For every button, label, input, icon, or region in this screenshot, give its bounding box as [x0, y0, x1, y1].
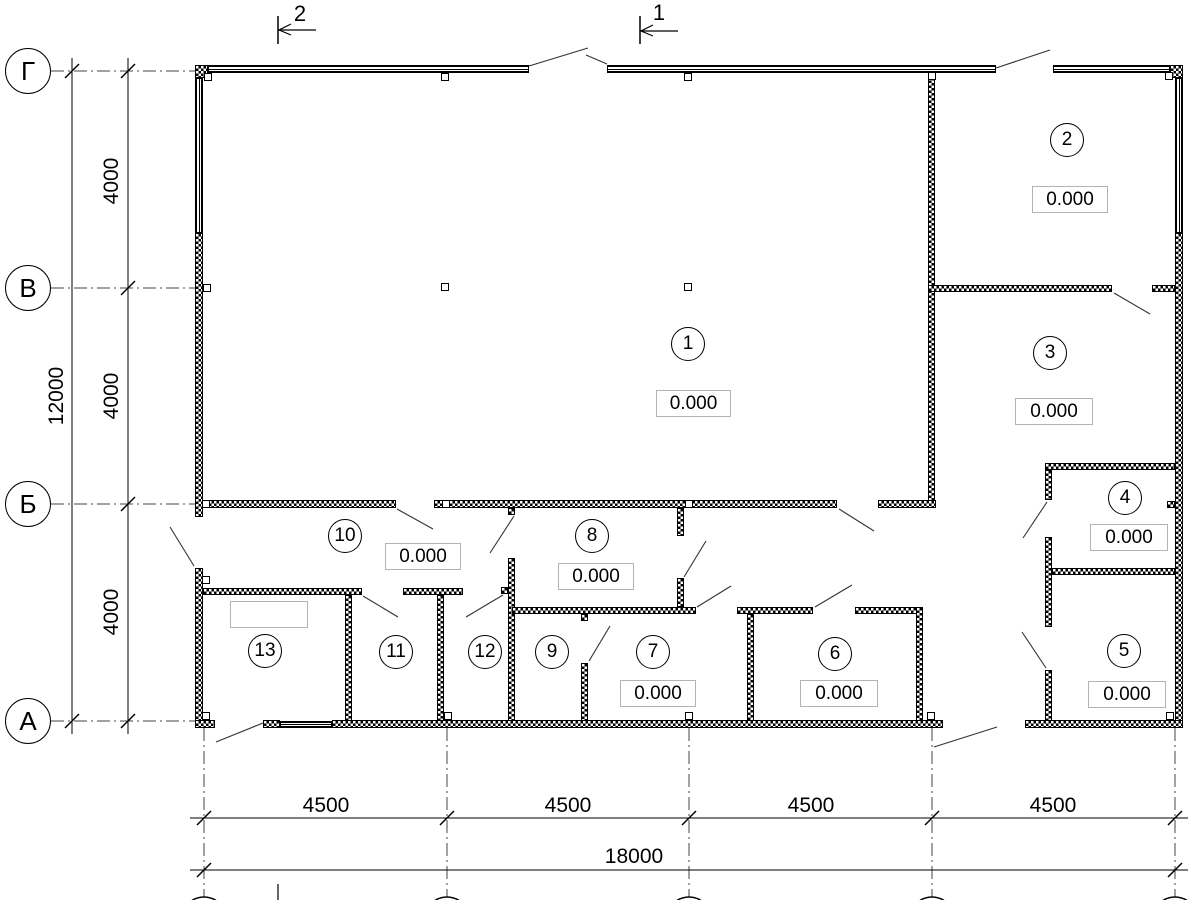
wall-room12-top-stub: [501, 587, 508, 594]
dim-horizontal-segment-1: 4500: [303, 794, 350, 818]
wall-room11-12-top: [403, 588, 463, 595]
plan-linework: [0, 0, 1200, 900]
room-number-7: 7: [636, 635, 670, 669]
wall-bottom-seg3: [1025, 720, 1183, 728]
room-number-13: 13: [248, 634, 282, 668]
dim-horizontal-segment-2: 4500: [545, 794, 592, 818]
column-marker: [1166, 712, 1174, 720]
window-top-right-band: [1053, 65, 1170, 73]
dim-vertical-segment-2: 4000: [100, 373, 124, 420]
wall-room5-left-lower: [1045, 670, 1052, 721]
column-marker: [204, 73, 212, 81]
wall-room7-6-top-seg2: [855, 607, 923, 614]
wall-partition-12-9: [508, 558, 515, 721]
room-5-elevation: 0.000: [1088, 681, 1166, 708]
room-number-5: 5: [1107, 634, 1141, 668]
column-marker: [685, 500, 693, 508]
room-7-elevation: 0.000: [620, 680, 696, 707]
wall-axisBB-seg1: [203, 500, 396, 508]
section-mark-2: [278, 16, 316, 900]
wall-partition-11-12: [437, 595, 444, 721]
room-number-12: 12: [468, 635, 502, 669]
room-number-11: 11: [379, 635, 413, 669]
wall-partition-12-9-stub: [508, 508, 515, 515]
wall-right-axisBB-stub: [1167, 501, 1175, 508]
wall-bottom-seg1: [263, 720, 280, 728]
column-marker: [202, 576, 210, 584]
room-3-elevation: 0.000: [1015, 398, 1093, 425]
wall-bottom-corner-left: [195, 720, 215, 728]
axis-row-v: В: [5, 265, 51, 311]
column-marker: [202, 500, 210, 508]
column-marker: [441, 73, 449, 81]
column-marker: [203, 284, 211, 292]
wall-room6-right: [916, 607, 923, 721]
dimension-ticks: [65, 64, 1182, 877]
dim-vertical-total: 12000: [45, 367, 69, 425]
room-number-3: 3: [1033, 336, 1067, 370]
axis-row-a: А: [5, 698, 51, 744]
wall-right: [1175, 233, 1183, 728]
room-2-elevation: 0.000: [1032, 186, 1108, 213]
wall-room8-right-stub-lower: [677, 578, 684, 607]
column-marker: [685, 712, 693, 720]
dim-horizontal-segment-3: 4500: [788, 794, 835, 818]
wall-room4-top: [1045, 463, 1175, 470]
wall-bottom-seg2: [332, 720, 943, 728]
room-number-6: 6: [818, 637, 852, 671]
window-bottom-wall: [280, 721, 332, 728]
room-8-elevation: 0.000: [558, 563, 634, 590]
dim-vertical-segment-1: 4000: [100, 158, 124, 205]
wall-room4-5-left: [1045, 537, 1052, 627]
wall-room9-7-top: [512, 607, 696, 614]
wall-room13-top: [203, 588, 362, 595]
wall-partition-13-11: [345, 595, 352, 721]
column-marker: [1165, 72, 1173, 80]
wall-room8-right-stub-upper: [677, 508, 684, 536]
dimension-lines: [72, 58, 1188, 870]
wall-axisB-seg2: [1152, 285, 1175, 292]
wall-partition-9-7-stub: [581, 614, 588, 621]
floor-plan-canvas: 1 2 3 4 5 6 7 8 9 10 11 12 13 0.000 0.00…: [0, 0, 1200, 900]
axis-row-b: Б: [5, 481, 51, 527]
dim-horizontal-total: 18000: [605, 845, 663, 869]
wall-left-lower: [195, 568, 203, 728]
column-marker: [444, 712, 452, 720]
column-marker: [684, 283, 692, 291]
wall-room4-left-stub: [1045, 470, 1052, 500]
room-number-8: 8: [575, 519, 609, 553]
room-number-2: 2: [1050, 123, 1084, 157]
column-marker: [684, 73, 692, 81]
room-number-9: 9: [535, 635, 569, 669]
column-marker: [441, 283, 449, 291]
window-right-wall: [1175, 78, 1183, 233]
dim-horizontal-segment-4: 4500: [1030, 794, 1077, 818]
wall-axisBB-seg3: [878, 500, 936, 508]
wall-axisB-seg1: [928, 285, 1112, 292]
section-label-1: 1: [653, 0, 665, 26]
wall-axisBB-seg2: [434, 500, 837, 508]
room-4-elevation: 0.000: [1090, 524, 1168, 551]
window-top-left-band: [208, 65, 529, 73]
room-number-4: 4: [1108, 481, 1142, 515]
column-marker: [202, 712, 210, 720]
wall-room4-5-divider: [1052, 568, 1175, 575]
window-top-middle-band: [607, 65, 996, 73]
axis-row-g: Г: [5, 48, 51, 94]
window-left-wall: [195, 78, 203, 233]
wall-partition-9-7: [581, 663, 588, 721]
column-marker: [442, 500, 450, 508]
dim-vertical-segment-3: 4000: [100, 589, 124, 636]
room-10-elevation: 0.000: [385, 543, 461, 570]
room-number-10: 10: [328, 519, 362, 553]
column-marker: [927, 712, 935, 720]
column-marker: [928, 72, 936, 80]
room-number-1: 1: [671, 327, 705, 361]
room-1-elevation: 0.000: [656, 390, 731, 417]
wall-room7-6-top-seg1: [737, 607, 813, 614]
room-6-elevation: 0.000: [800, 680, 878, 707]
room-13-elevation: [230, 601, 308, 628]
wall-partition-7-6: [747, 614, 754, 721]
wall-left-upper: [195, 233, 203, 517]
section-label-2: 2: [294, 1, 306, 27]
